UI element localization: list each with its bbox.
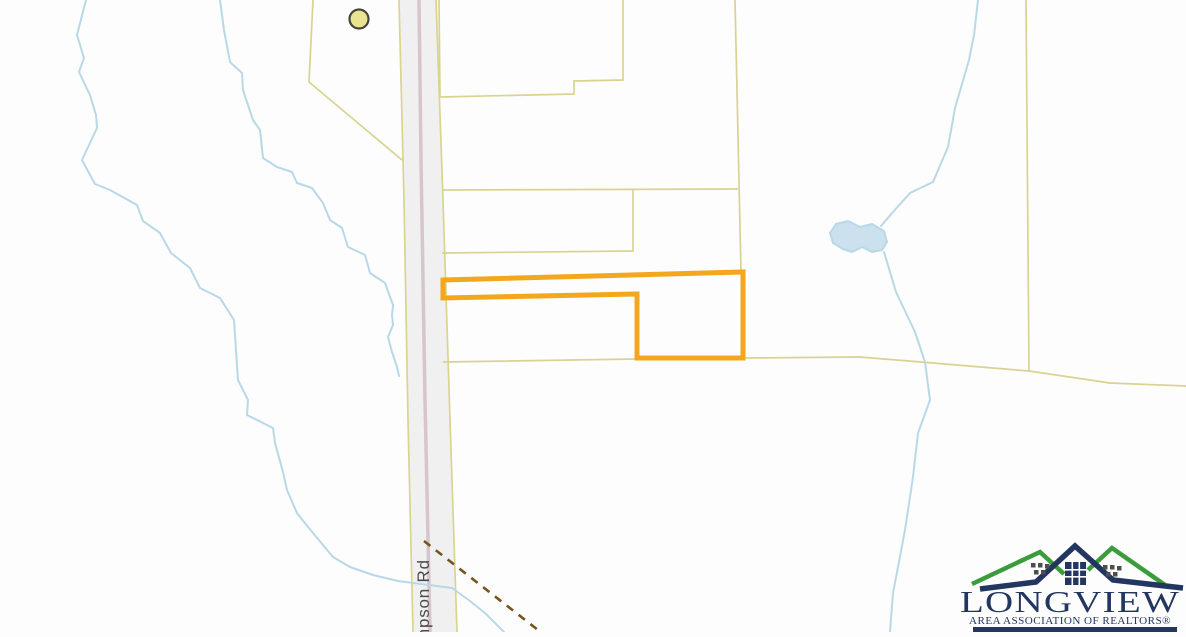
window-frame: [1065, 562, 1086, 585]
window-pane: [1117, 566, 1122, 571]
pond: [830, 221, 887, 252]
road: [399, 0, 457, 632]
center-window-icon: [1065, 562, 1086, 585]
road-label: mpson Rd: [414, 559, 433, 632]
parcel-line-3: [735, 0, 741, 272]
creek-line-4: [884, 252, 930, 632]
window-pane: [1113, 572, 1118, 577]
logo-title: LONGVIEW: [960, 584, 1180, 619]
window-pane: [1106, 572, 1111, 577]
window-pane-line: [1072, 562, 1074, 585]
window-pane-line: [1079, 562, 1081, 585]
highlighted-parcel-outline[interactable]: [443, 272, 743, 358]
window-pane-line: [1065, 576, 1086, 578]
parcel-line-4: [442, 189, 738, 190]
parcel-line-2: [439, 0, 623, 97]
well-point-marker: [350, 10, 369, 29]
pond-shape: [830, 221, 887, 252]
logo-subtitle: AREA ASSOCIATION OF REALTORS®: [969, 616, 1171, 627]
realtor-association-logo: LONGVIEW AREA ASSOCIATION OF REALTORS®: [955, 540, 1186, 632]
window-pane: [1103, 565, 1108, 570]
window-pane: [1038, 563, 1043, 568]
highlighted-parcel[interactable]: [443, 272, 743, 358]
creek-line-3: [881, 0, 978, 226]
logo-underline-bar: [973, 627, 1177, 632]
logo-roof-graphic: [972, 546, 1183, 589]
window-pane: [1041, 570, 1046, 575]
parcel-line-6: [442, 251, 633, 253]
map-canvas[interactable]: mpson Rd: [0, 0, 1186, 632]
window-pane-line: [1065, 569, 1086, 571]
well-point: [350, 10, 369, 29]
window-pane: [1031, 563, 1036, 568]
window-pane: [1110, 565, 1115, 570]
window-pane: [1045, 564, 1050, 569]
parcel-line-7: [443, 357, 1186, 386]
window-pane: [1034, 570, 1039, 575]
parcel-line-8: [1026, 0, 1029, 371]
